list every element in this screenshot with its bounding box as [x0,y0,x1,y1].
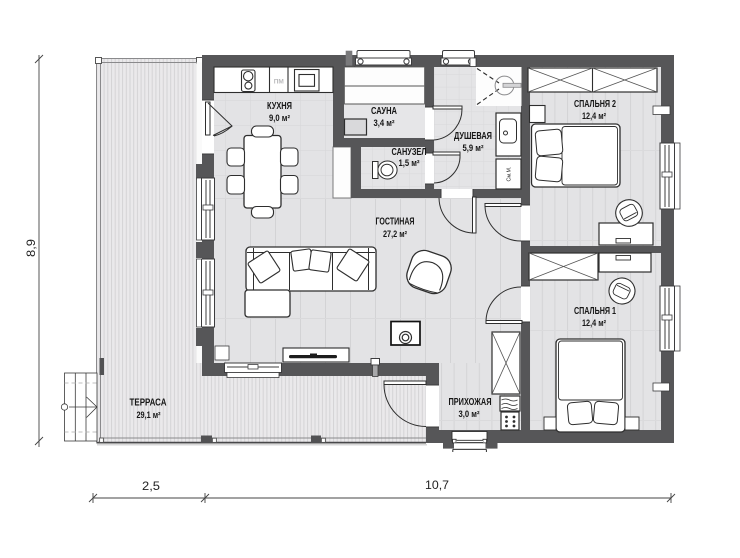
svg-text:ПРИХОЖАЯ: ПРИХОЖАЯ [449,397,492,408]
svg-text:5,9 м²: 5,9 м² [463,143,484,153]
svg-text:2,5: 2,5 [142,479,160,493]
svg-text:29,1 м²: 29,1 м² [137,410,161,420]
svg-text:ПМ: ПМ [274,79,284,86]
svg-text:9,0 м²: 9,0 м² [269,113,290,123]
svg-text:САУНА: САУНА [371,106,397,117]
svg-text:СПАЛЬНЯ 2: СПАЛЬНЯ 2 [574,99,616,110]
svg-text:10,7: 10,7 [425,478,449,492]
svg-text:САНУЗЕЛ: САНУЗЕЛ [392,147,427,158]
svg-text:3,0 м²: 3,0 м² [459,409,480,419]
svg-text:12,4 м²: 12,4 м² [582,318,606,328]
svg-text:12,4 м²: 12,4 м² [582,111,606,121]
svg-text:ТЕРРАСА: ТЕРРАСА [130,398,167,409]
svg-text:КУХНЯ: КУХНЯ [267,101,292,112]
svg-text:3,4 м²: 3,4 м² [374,118,395,128]
svg-text:1,5 м²: 1,5 м² [399,158,420,168]
svg-text:ГОСТИНАЯ: ГОСТИНАЯ [376,217,415,228]
svg-text:СПАЛЬНЯ 1: СПАЛЬНЯ 1 [574,306,616,317]
svg-text:ДУШЕВАЯ: ДУШЕВАЯ [454,131,492,142]
svg-text:8,9: 8,9 [24,239,38,257]
svg-text:27,2 м²: 27,2 м² [383,229,407,239]
svg-text:См.М.: См.М. [507,166,513,181]
